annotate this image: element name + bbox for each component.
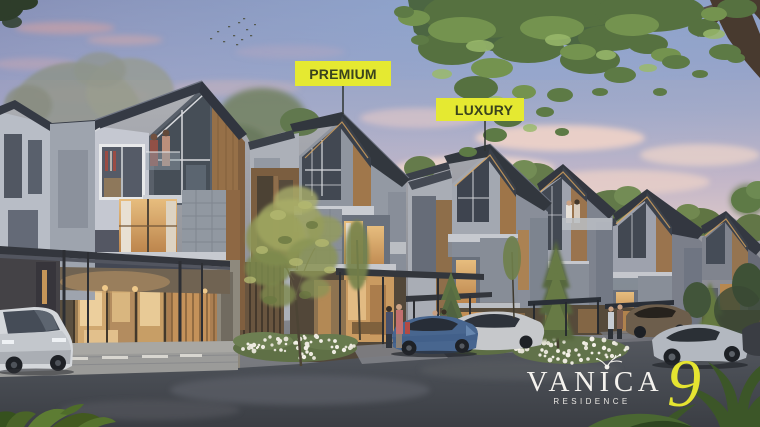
svg-text:PREMIUM: PREMIUM [309, 66, 377, 82]
svg-text:LUXURY: LUXURY [455, 102, 514, 118]
svg-text:VANICA: VANICA [527, 366, 664, 398]
svg-text:9: 9 [667, 345, 701, 421]
svg-text:RESIDENCE: RESIDENCE [553, 397, 630, 406]
